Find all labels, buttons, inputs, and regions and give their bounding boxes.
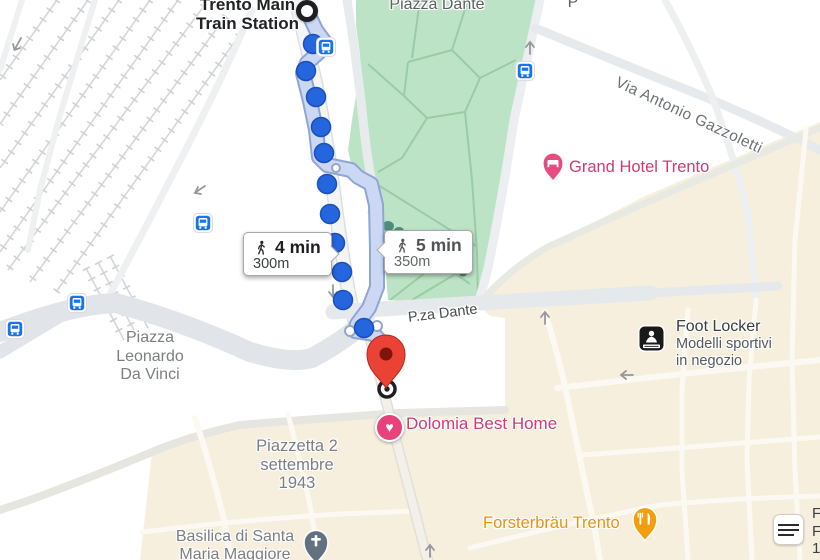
map-base-layer	[0, 0, 820, 560]
poi-label-dolomia[interactable]: Dolomia Best Home	[406, 415, 557, 433]
poi-label-forsterbrau[interactable]: Forsterbräu Trento	[483, 514, 620, 532]
bus-stop-icon[interactable]	[515, 61, 535, 81]
bus-stop-icon[interactable]	[316, 37, 336, 57]
destination-pin-icon[interactable]	[362, 326, 410, 390]
hotel-pin-icon[interactable]	[539, 146, 567, 182]
map-canvas[interactable]: Trento Main Train Station Piazza Dante P…	[0, 0, 820, 560]
bus-stop-icon[interactable]	[193, 213, 213, 233]
area-label-piazzetta: Piazzetta 2 settembre 1943	[222, 437, 372, 493]
poi-label-foot-locker[interactable]: Foot Locker Modelli sportivi in negozio	[676, 318, 772, 370]
heart-icon[interactable]: ♥	[375, 413, 404, 442]
footlocker-logo-icon[interactable]	[638, 325, 665, 352]
bus-stop-icon[interactable]	[5, 319, 25, 339]
area-label-basilica: Basilica di Santa Maria Maggiore	[145, 528, 325, 560]
area-label-piazza-leonardo: Piazza Leonardo Da Vinci	[75, 329, 225, 385]
route-time-bubble-selected[interactable]: 4 min 300m	[243, 232, 332, 276]
route-time-bubble-alternative[interactable]: 5 min 350m	[384, 230, 473, 274]
poi-label-grand-hotel[interactable]: Grand Hotel Trento	[569, 158, 709, 176]
restaurant-pin-icon[interactable]	[628, 499, 662, 542]
partial-label-top: P	[566, 0, 580, 12]
route-start-marker[interactable]	[296, 0, 318, 22]
walking-person-icon	[394, 238, 410, 254]
store-logo-icon[interactable]	[773, 514, 804, 545]
park-label: Piazza Dante	[377, 0, 497, 14]
church-pin-icon[interactable]	[299, 522, 333, 560]
train-stop-icon[interactable]	[67, 293, 87, 313]
walking-person-icon	[253, 240, 269, 256]
partial-label-right: F F 1	[812, 505, 820, 558]
